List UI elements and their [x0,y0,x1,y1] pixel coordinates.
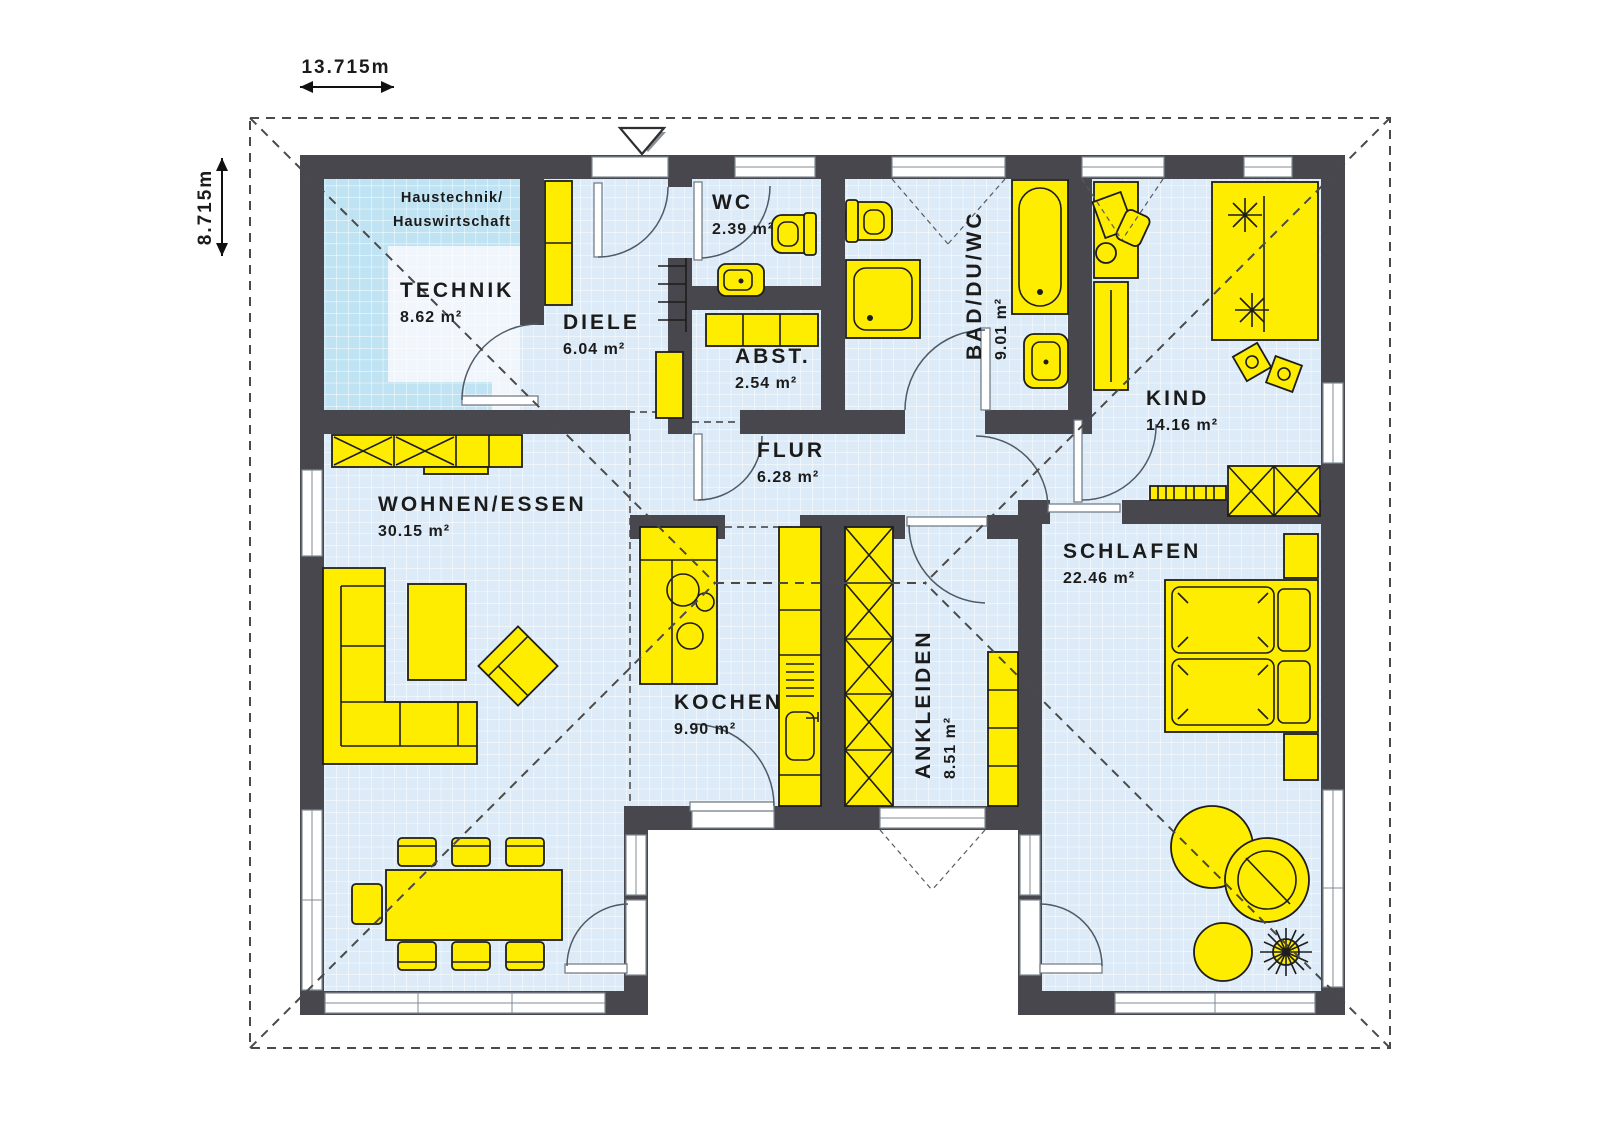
dressing-wardrobe [988,652,1018,806]
room-label-kochen: KOCHEN 9.90 m² [674,692,783,738]
room-name: TECHNIK [400,280,514,301]
technik-note-line2: Hauswirtschaft [393,214,511,230]
room-label-diele: DIELE 6.04 m² [563,312,640,358]
storage-shelf [706,314,818,346]
room-label-schlafen: SCHLAFEN 22.46 m² [1063,541,1201,587]
room-name: WC [712,192,774,213]
room-label-ankleiden: ANKLEIDEN 8.51 m² [913,629,969,779]
room-label-bad: BAD/DU/WC 9.01 m² [964,190,1026,360]
kitchen-island [640,527,717,684]
room-name: KIND [1146,388,1218,409]
room-label-wohnen: WOHNEN/ESSEN 30.15 m² [378,494,587,540]
room-area: 9.01 m² [994,190,1010,360]
dimension-width-label: 13.715m [294,57,398,79]
dimension-height-label: 8.715m [195,155,217,259]
room-area: 14.16 m² [1146,418,1218,434]
room-area: 2.54 m² [735,376,811,392]
room-name: DIELE [563,312,640,333]
entrance-marker-icon [620,128,666,154]
room-label-flur: FLUR 6.28 m² [757,440,825,486]
room-name: KOCHEN [674,692,783,713]
dimension-arrow-width [300,81,394,93]
room-name: SCHLAFEN [1063,541,1201,562]
hall-closet-row [845,527,893,806]
wc-toilet [772,213,816,255]
shower [846,260,920,338]
bath-toilet [846,200,892,242]
bath-sink [1024,334,1068,388]
coffee-table [408,584,466,680]
kid-wardrobe [1228,466,1320,516]
floor-plan-drawing [0,0,1600,1132]
kid-bed [1212,182,1318,340]
kid-shelf [1094,282,1128,390]
dimension-arrow-height [216,158,228,256]
wc-sink [718,264,764,296]
room-name: BAD/DU/WC [964,190,985,360]
room-label-technik: TECHNIK 8.62 m² [400,280,514,326]
room-area: 30.15 m² [378,524,587,540]
room-area: 6.04 m² [563,342,640,358]
entrance-opening [592,157,668,177]
technik-note: Haustechnik/ Hauswirtschaft [342,186,562,234]
terrace-recess [648,830,1018,1015]
book-shelf [1150,486,1226,500]
room-label-kind: KIND 14.16 m² [1146,388,1218,434]
room-label-abst: ABST. 2.54 m² [735,346,811,392]
room-area: 22.46 m² [1063,571,1201,587]
floor-plan-canvas: 13.715m 8.715m Haustechnik/ Hauswirtscha… [0,0,1600,1132]
room-name: WOHNEN/ESSEN [378,494,587,515]
room-name: FLUR [757,440,825,461]
technik-note-line1: Haustechnik/ [401,190,503,206]
room-name: ANKLEIDEN [913,629,934,779]
room-name: ABST. [735,346,811,367]
room-area: 8.51 m² [943,629,959,779]
room-area: 2.39 m² [712,222,774,238]
room-area: 6.28 m² [757,470,825,486]
kitchen-counter [779,527,821,806]
room-area: 9.90 m² [674,722,783,738]
room-area: 8.62 m² [400,310,514,326]
room-label-wc: WC 2.39 m² [712,192,774,238]
